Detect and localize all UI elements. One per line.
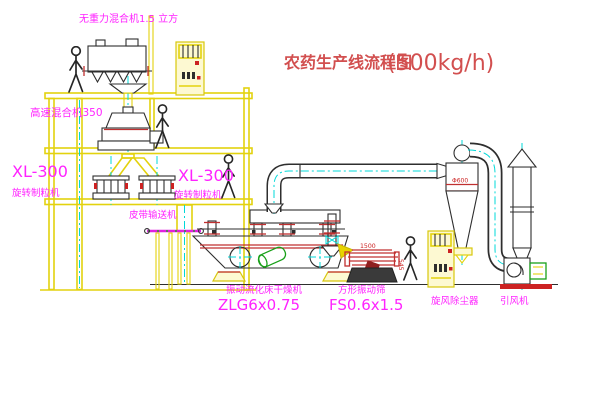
dryer-model-label: ZLG6x0.75 [218, 296, 300, 314]
dryer-foot-left [213, 272, 245, 281]
control-cabinet-top [176, 42, 204, 95]
granulator-right-machine [139, 176, 175, 199]
belt-conveyor-machine [145, 229, 204, 234]
exhaust-duct [265, 164, 447, 215]
cabinet1-indicator-light [195, 61, 199, 65]
cyclone-label: 旋风除尘器 [431, 295, 479, 307]
fan-label: 引风机 [500, 295, 529, 307]
title-capacity: (500kg/h) [387, 51, 494, 76]
fan-base [500, 284, 552, 289]
cabinet2-indicator-light [448, 249, 452, 253]
control-cabinet-ground [428, 231, 454, 287]
granulator-left-model-label: XL-300 [12, 162, 68, 181]
dryer-name-label: 振动流化床干燥机 [226, 284, 303, 296]
granulator-right-name-label: 旋转制粒机 [174, 189, 222, 201]
belt-conveyor-label: 皮带输送机 [129, 209, 177, 221]
granulator-left-name-label: 旋转制粒机 [12, 187, 60, 199]
flow-diagram: Φ600 1500 [0, 0, 600, 403]
person-figure [404, 237, 417, 280]
gravity-mixer-machine [82, 39, 152, 112]
granulator-right-model-label: XL-300 [178, 166, 234, 185]
sieve-length-dim: 1500 [360, 243, 376, 250]
gravity-mixer-label: 无重力混合机1.5 立方 [79, 12, 178, 25]
person-figure [69, 47, 83, 92]
cyclone-diameter-dim: Φ600 [452, 178, 468, 185]
square-sieve-machine: 1500 545 [345, 243, 404, 282]
high-speed-mixer-label: 高速混合机350 [30, 106, 103, 119]
drawing-canvas: Φ600 1500 [0, 0, 600, 403]
dryer-vibration-motor [257, 245, 288, 268]
sieve-height-dim: 545 [397, 259, 404, 271]
granulator-left-machine [93, 176, 129, 199]
sieve-name-label: 方形振动筛 [338, 284, 386, 296]
induced-draft-fan-machine [500, 258, 552, 289]
cyclone-discharge [452, 248, 472, 255]
sieve-base [347, 268, 397, 282]
sieve-model-label: FS0.6x1.5 [329, 296, 403, 314]
